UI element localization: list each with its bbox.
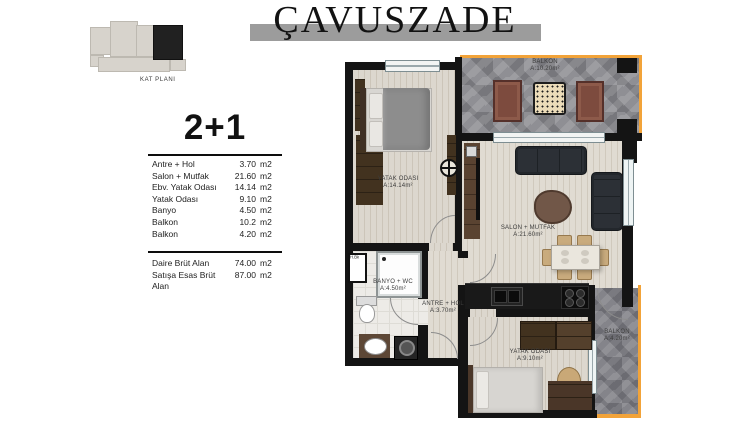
total-value: 74.00 (226, 258, 256, 270)
room-area-unit: m2 (256, 159, 280, 171)
total-unit: m2 (256, 258, 280, 270)
table-row: Satışa Esas Brüt Alan87.00m2 (152, 270, 280, 293)
room-area-value: 14.14 (226, 182, 256, 194)
room-area: A:21.60m² (488, 232, 568, 239)
table-row: Salon + Mutfak21.60m2 (152, 171, 280, 183)
room-area: A:14.14m² (358, 183, 438, 190)
table-plate (561, 250, 569, 256)
room-label-banyo: BANYO + WC A:4.50m² (353, 279, 433, 293)
table-row: Daire Brüt Alan74.00m2 (152, 258, 280, 270)
room-area-unit: m2 (256, 217, 280, 229)
room-name: BANYO + WC (353, 279, 433, 286)
sink-basin (508, 290, 520, 303)
divider-line (148, 251, 282, 253)
stove-burner (565, 289, 574, 298)
room-name: Yatak Odası (152, 194, 226, 206)
key-plan-block (90, 27, 112, 55)
room-area-value: 3.70 (226, 159, 256, 171)
room-label-balcony-right: BALKON A:4.20m² (577, 329, 657, 343)
room-label-bedroom2: YATAK ODASI A:9.10m² (490, 349, 570, 363)
balcony-right-outline (590, 414, 641, 418)
room-area-unit: m2 (256, 229, 280, 241)
room-name: Salon + Mutfak (152, 171, 226, 183)
door-opening (458, 258, 468, 285)
totals-list: Daire Brüt Alan74.00m2 Satışa Esas Brüt … (152, 258, 280, 293)
balcony-right-outline (638, 285, 641, 418)
table-row: Antre + Hol3.70m2 (152, 159, 280, 171)
total-value: 87.00 (226, 270, 256, 293)
stove-burner (565, 298, 574, 307)
wall-column (617, 58, 637, 73)
balcony-armchair (493, 80, 522, 122)
room-area-unit: m2 (256, 171, 280, 183)
key-plan-highlighted-unit (153, 25, 183, 60)
window (493, 132, 605, 143)
key-plan (90, 15, 186, 75)
room-area-unit: m2 (256, 205, 280, 217)
room-list: Antre + Hol3.70m2 Salon + Mutfak21.60m2 … (152, 159, 280, 240)
room-area: A:3.70m² (403, 308, 483, 315)
wall (455, 57, 462, 250)
room-area-value: 21.60 (226, 171, 256, 183)
balcony-table (533, 82, 566, 115)
room-name: BALKON (505, 59, 585, 66)
room-label-salon: SALON + MUTFAK A:21.60m² (488, 225, 568, 239)
ceiling-light-icon (440, 159, 458, 177)
room-area-value: 10.2 (226, 217, 256, 229)
room-name: Banyo (152, 205, 226, 217)
dining-table (551, 245, 600, 270)
coffee-table (534, 190, 572, 224)
vanity-sink (364, 338, 387, 355)
room-area: A:4.50m² (353, 286, 433, 293)
key-plan-caption: KAT PLANI (140, 77, 200, 83)
key-plan-block (170, 59, 186, 71)
room-name: BALKON (577, 329, 657, 336)
stove-burner (576, 289, 585, 298)
room-name: ANTRE + HOL (403, 301, 483, 308)
key-plan-block (110, 21, 138, 57)
table-plate (581, 250, 589, 256)
floor-plan: BALKON A:10.20m² YATAK ODASI A:14.14m² S… (345, 55, 648, 422)
window (385, 60, 440, 72)
room-name: Balkon (152, 229, 226, 241)
room-area-unit: m2 (256, 194, 280, 206)
balcony-top-outline (639, 55, 642, 139)
shower-drain (382, 257, 386, 261)
shaft-label: H.Bk (350, 256, 361, 260)
room-name: YATAK ODASI (358, 176, 438, 183)
table-row: Balkon10.2m2 (152, 217, 280, 229)
door-opening (429, 243, 453, 251)
room-area-unit: m2 (256, 182, 280, 194)
sofa-large (515, 146, 587, 175)
room-label-balcony-top: BALKON A:10.20m² (505, 59, 585, 73)
balcony-armchair (576, 81, 604, 122)
room-name: Ebv. Yatak Odası (152, 182, 226, 194)
unit-type-label: 2+1 (148, 108, 282, 148)
total-name: Satışa Esas Brüt Alan (152, 270, 226, 293)
room-label-bedroom-master: YATAK ODASI A:14.14m² (358, 176, 438, 190)
room-name: Antre + Hol (152, 159, 226, 171)
bed-blanket (383, 88, 430, 150)
room-label-antre: ANTRE + HOL A:3.70m² (403, 301, 483, 315)
picture-frame (466, 146, 477, 157)
room-area: A:4.20m² (577, 336, 657, 343)
pillow (369, 121, 383, 147)
window (623, 159, 634, 226)
wardrobe (520, 321, 556, 350)
stove (561, 286, 589, 309)
toilet (359, 304, 375, 323)
table-plate (581, 258, 589, 264)
room-area: A:9.10m² (490, 356, 570, 363)
page-title: ÇAVUSZADE (245, 0, 545, 41)
wall (345, 62, 353, 366)
desk (548, 381, 592, 410)
room-name: SALON + MUTFAK (488, 225, 568, 232)
room-area-value: 9.10 (226, 194, 256, 206)
pillow (369, 93, 383, 119)
table-plate (561, 258, 569, 264)
room-area: A:10.20m² (505, 66, 585, 73)
wall-column (617, 119, 637, 137)
table-row: Yatak Odası9.10m2 (152, 194, 280, 206)
sink-basin (494, 290, 507, 303)
tv (476, 158, 480, 220)
table-row: Ebv. Yatak Odası14.14m2 (152, 182, 280, 194)
floorplan-sheet: { "title": "ÇAVUSZADE", "mini_plan": { "… (0, 0, 750, 422)
total-unit: m2 (256, 270, 280, 293)
washing-machine-drum (399, 340, 415, 356)
balcony-top-outline (460, 55, 642, 58)
divider-line (148, 154, 282, 156)
table-row: Balkon4.20m2 (152, 229, 280, 241)
room-name: Balkon (152, 217, 226, 229)
room-area-value: 4.20 (226, 229, 256, 241)
room-name: YATAK ODASI (490, 349, 570, 356)
room-area-value: 4.50 (226, 205, 256, 217)
table-row: Banyo4.50m2 (152, 205, 280, 217)
sofa-small (591, 172, 623, 231)
total-name: Daire Brüt Alan (152, 258, 226, 270)
stove-burner (576, 298, 585, 307)
pillow (476, 371, 489, 409)
